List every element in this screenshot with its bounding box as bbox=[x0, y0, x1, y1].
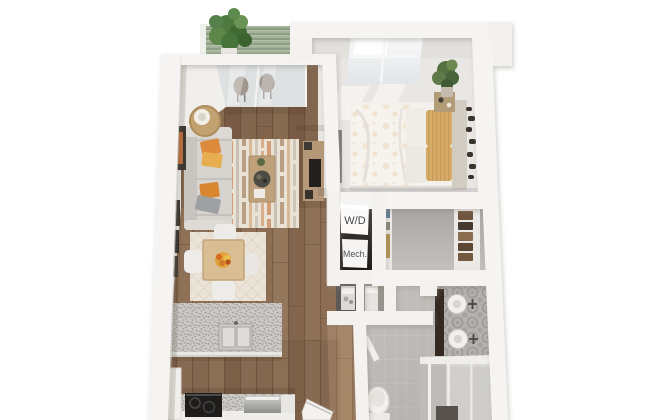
svg-text:W/D: W/D bbox=[344, 215, 365, 227]
svg-text:Mech.: Mech. bbox=[343, 249, 367, 259]
